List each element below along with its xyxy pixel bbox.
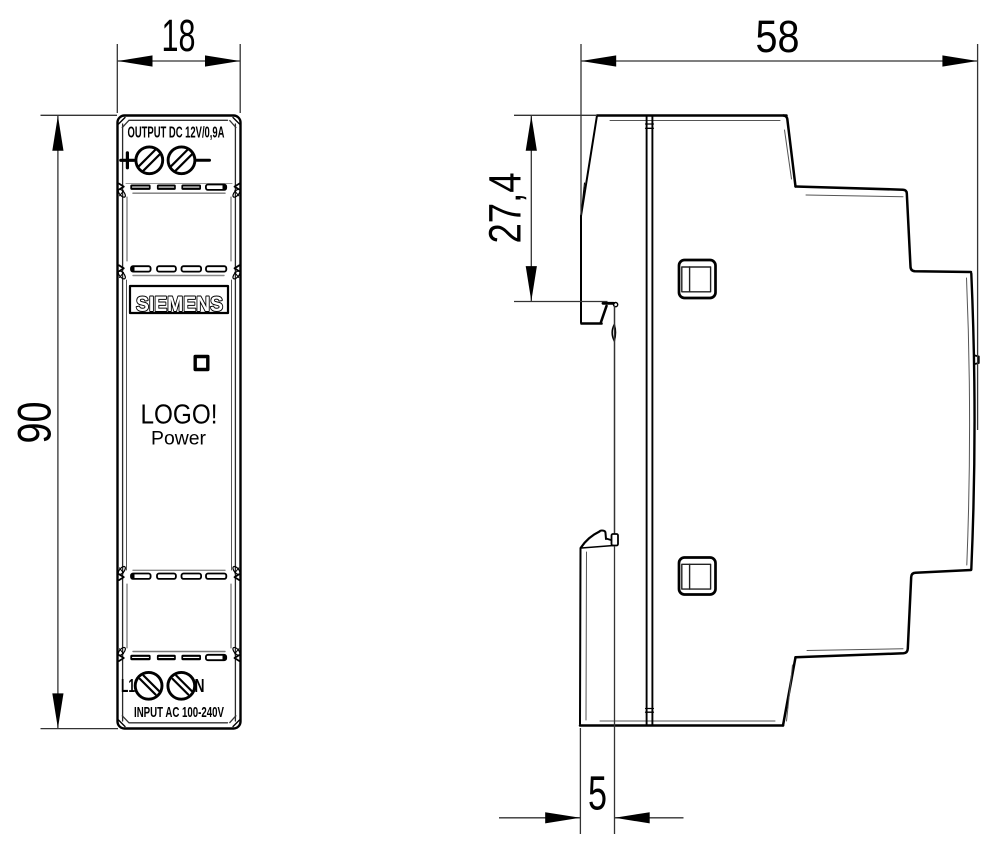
svg-text:L1: L1 [121,676,135,696]
svg-text:5: 5 [588,768,607,821]
svg-text:90: 90 [9,402,62,444]
svg-text:Power: Power [151,428,206,450]
svg-text:N: N [195,676,205,696]
svg-text:INPUT AC 100-240V: INPUT AC 100-240V [134,704,224,721]
svg-text:OUTPUT DC 12V/0,9A: OUTPUT DC 12V/0,9A [128,125,225,142]
svg-text:27,4: 27,4 [480,173,531,244]
svg-text:SIEMENS: SIEMENS [136,292,223,316]
svg-text:58: 58 [756,11,800,62]
svg-text:18: 18 [162,10,196,61]
svg-text:LOGO!: LOGO! [141,399,218,430]
